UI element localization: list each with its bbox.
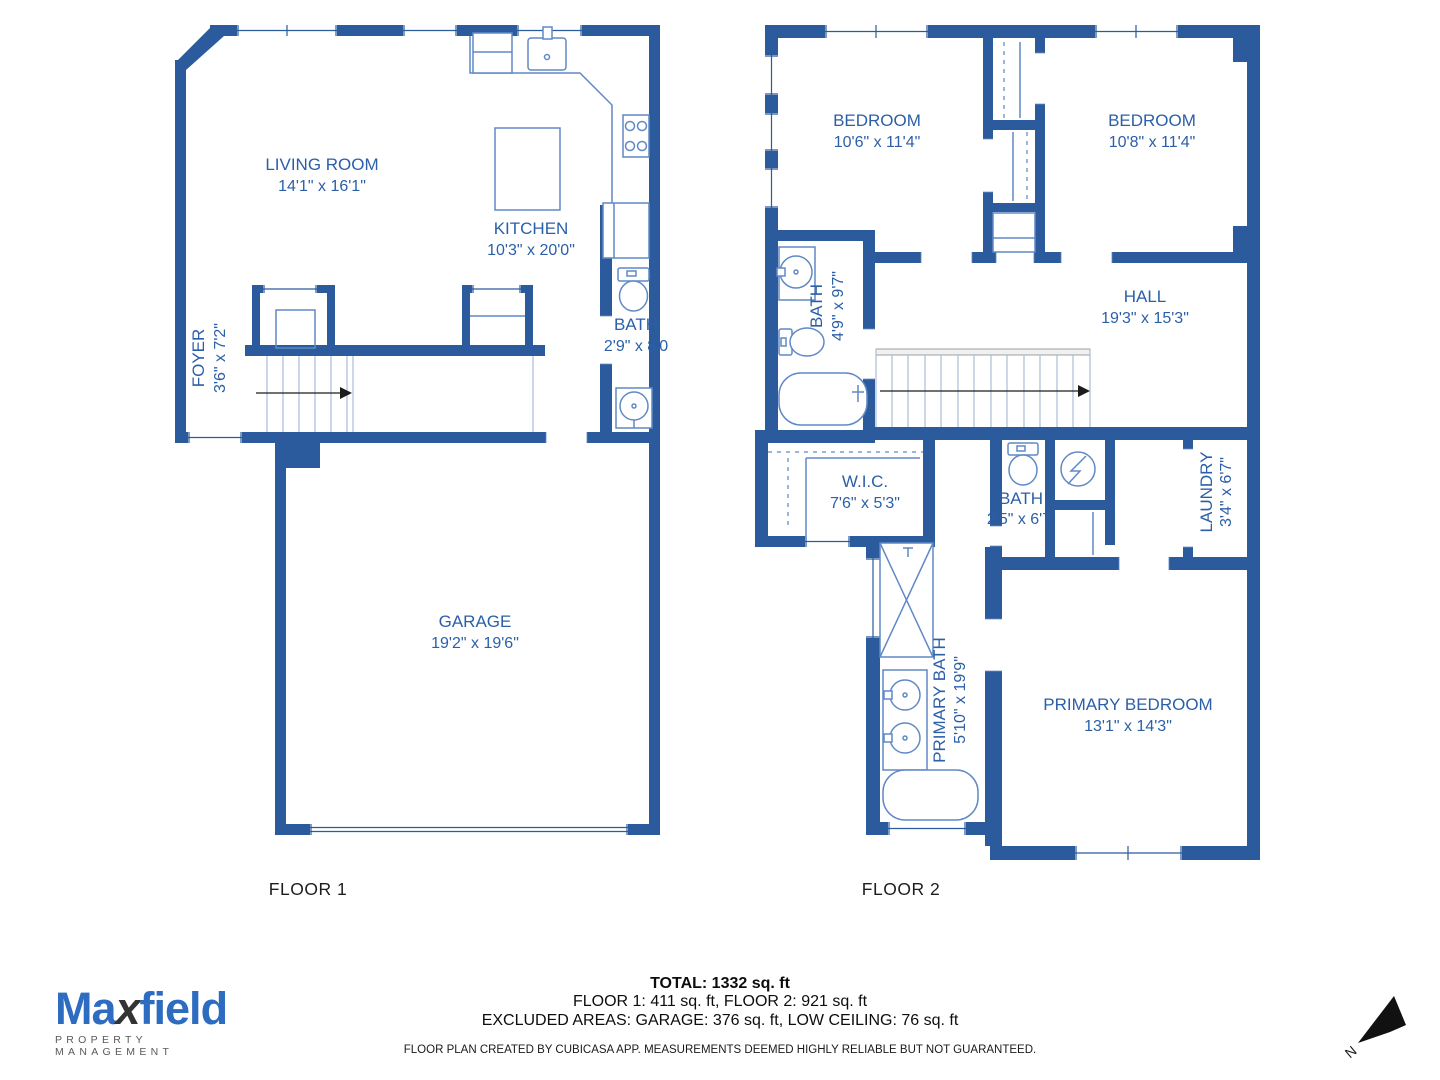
kitchen-label: KITCHEN [494, 219, 569, 238]
floor1-walls [175, 25, 660, 835]
bath-upper-dims: 4'9" x 9'7" [830, 271, 847, 341]
door-opening [1105, 545, 1115, 557]
living-room-label: LIVING ROOM [265, 155, 378, 174]
garage-door [310, 824, 628, 835]
primary-bath-label: PRIMARY BATH [930, 637, 949, 763]
wic-label: W.I.C. [842, 472, 888, 491]
hall-dims: 19'3" x 15'3" [1101, 310, 1189, 327]
bedroom-right-label: BEDROOM [1108, 111, 1196, 130]
window [765, 168, 778, 208]
disclaimer-text: FLOOR PLAN CREATED BY CUBICASA APP. MEAS… [0, 1044, 1440, 1056]
floor2-plan: BEDROOM 10'6" x 11'4" BEDROOM 10'8" x 11… [755, 25, 1260, 899]
floor1-closet-interiors [276, 310, 525, 348]
foyer-dims: 3'6" x 7'2" [212, 323, 229, 393]
bath-upper-label: BATH [807, 284, 826, 328]
bath1-dims: 2'9" x 8'0 [604, 338, 668, 355]
bathtub-icon [779, 373, 867, 425]
kitchen-dims: 10'3" x 20'0" [487, 242, 575, 259]
closet-door-opening [983, 138, 993, 193]
primary-bath-dims: 5'10" x 19'9" [952, 656, 969, 744]
kitchen-island [495, 128, 560, 210]
door-opening [995, 252, 1035, 263]
closet-door-opening [1035, 52, 1045, 105]
floor-areas-text: FLOOR 1: 411 sq. ft, FLOOR 2: 921 sq. ft [0, 993, 1440, 1011]
floor1-stairs [256, 356, 533, 432]
garage-label: GARAGE [439, 612, 512, 631]
bath-door-opening [863, 328, 875, 380]
window [825, 25, 928, 38]
stove-icon [623, 115, 649, 157]
primary-bedroom-dims: 13'1" x 14'3" [1084, 718, 1172, 735]
window [866, 558, 880, 638]
floor1-windows [188, 25, 628, 835]
window [805, 536, 850, 547]
floor1-title: FLOOR 1 [269, 879, 347, 899]
floorplan-canvas: LIVING ROOM 14'1" x 16'1" KITCHEN 10'3" … [0, 0, 1440, 1080]
bedroom-left-dims: 10'6" x 11'4" [834, 134, 921, 151]
water-heater-icon [1061, 452, 1095, 486]
floor1-plan: LIVING ROOM 14'1" x 16'1" KITCHEN 10'3" … [175, 25, 668, 899]
bath1-label: BATH [614, 315, 658, 334]
faucet-icon [543, 27, 552, 39]
bathtub-icon [883, 770, 978, 820]
closet-opening [472, 285, 521, 293]
bath-small-dims: 2'5" x 6'7 [987, 511, 1051, 528]
window [1095, 25, 1178, 38]
window [1075, 846, 1182, 860]
closet-opening [263, 285, 317, 293]
faucet-icon [777, 268, 785, 276]
floor2-title: FLOOR 2 [862, 879, 940, 899]
floor2-stairs [876, 349, 1090, 427]
foyer-label: FOYER [189, 329, 208, 388]
floor2-closet-interiors [993, 42, 1035, 252]
primary-bedroom-label: PRIMARY BEDROOM [1043, 695, 1212, 714]
window [888, 822, 966, 835]
entry-door-opening [545, 432, 588, 443]
door-opening [1118, 557, 1170, 570]
wic-dims: 7'6" x 5'3" [830, 495, 900, 512]
wic-interior [768, 452, 923, 536]
vanity-icon [883, 670, 927, 770]
living-room-dims: 14'1" x 16'1" [278, 178, 366, 195]
door-opening [985, 618, 1002, 672]
laundry-dims: 3'4" x 6'7" [1218, 457, 1235, 527]
window [237, 25, 337, 36]
floor2-bath-fixtures [777, 247, 867, 425]
bedroom-right-dims: 10'8" x 11'4" [1109, 134, 1196, 151]
area-summary: TOTAL: 1332 sq. ft FLOOR 1: 411 sq. ft, … [0, 975, 1440, 1056]
window [188, 432, 242, 443]
laundry-door-opening [1183, 448, 1193, 548]
bath-small-label: BATH [999, 489, 1043, 508]
window [765, 113, 778, 151]
door-opening [920, 252, 973, 263]
window [765, 55, 778, 95]
excluded-areas-text: EXCLUDED AREAS: GARAGE: 376 sq. ft, LOW … [0, 1012, 1440, 1030]
laundry-label: LAUNDRY [1197, 452, 1216, 533]
hall-label: HALL [1124, 287, 1167, 306]
door-opening [990, 525, 1002, 547]
window [403, 25, 457, 36]
door-opening [1060, 252, 1113, 263]
total-area-text: TOTAL: 1332 sq. ft [0, 975, 1440, 993]
faucet-icon [884, 691, 892, 699]
garage-dims: 19'2" x 19'6" [431, 635, 519, 652]
faucet-icon [884, 734, 892, 742]
bedroom-left-label: BEDROOM [833, 111, 921, 130]
